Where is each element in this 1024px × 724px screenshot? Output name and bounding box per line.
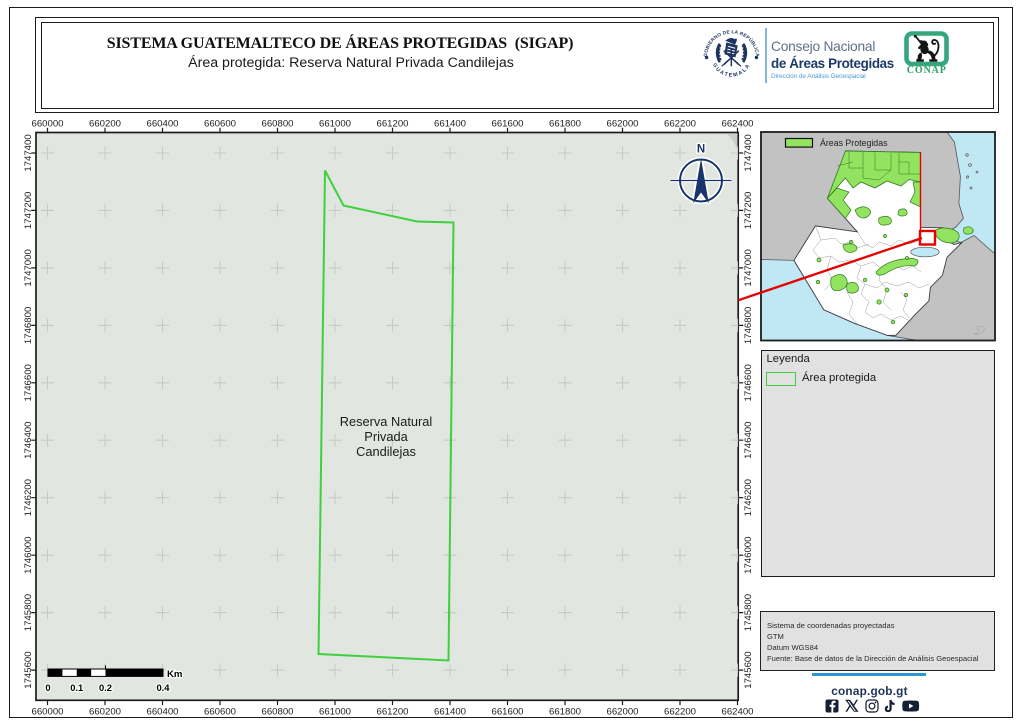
svg-text:1745600: 1745600 (23, 651, 34, 688)
svg-text:660400: 660400 (146, 707, 178, 718)
svg-text:660200: 660200 (89, 119, 121, 130)
svg-text:662200: 662200 (664, 119, 696, 130)
svg-text:N: N (697, 144, 705, 156)
svg-text:1745800: 1745800 (743, 594, 754, 631)
svg-text:Km: Km (167, 669, 182, 680)
svg-text:1747400: 1747400 (743, 134, 754, 171)
svg-text:662400: 662400 (721, 119, 753, 130)
svg-text:Candilejas: Candilejas (356, 444, 416, 459)
svg-text:660400: 660400 (146, 119, 178, 130)
svg-text:0.4: 0.4 (156, 682, 170, 693)
svg-text:1747200: 1747200 (23, 192, 34, 229)
svg-text:662400: 662400 (721, 707, 753, 718)
svg-text:1747000: 1747000 (23, 249, 34, 286)
svg-text:661600: 661600 (491, 119, 523, 130)
svg-text:Áreas Protegidas: Áreas Protegidas (820, 137, 888, 147)
svg-text:1746800: 1746800 (743, 307, 754, 344)
svg-text:661400: 661400 (434, 119, 466, 130)
svg-text:662200: 662200 (664, 707, 696, 718)
svg-text:1746200: 1746200 (23, 479, 34, 516)
svg-text:661000: 661000 (319, 707, 351, 718)
svg-text:1746600: 1746600 (23, 364, 34, 401)
svg-text:1746600: 1746600 (743, 364, 754, 401)
svg-text:661000: 661000 (319, 119, 351, 130)
svg-text:660800: 660800 (261, 707, 293, 718)
svg-text:661200: 661200 (376, 119, 408, 130)
svg-text:1745800: 1745800 (23, 594, 34, 631)
svg-text:660800: 660800 (261, 119, 293, 130)
svg-text:661600: 661600 (491, 707, 523, 718)
svg-text:0.1: 0.1 (70, 682, 83, 693)
svg-text:661200: 661200 (376, 707, 408, 718)
svg-text:Privada: Privada (364, 429, 408, 444)
svg-text:1746400: 1746400 (743, 422, 754, 459)
svg-text:0: 0 (45, 682, 50, 693)
svg-text:660000: 660000 (31, 707, 63, 718)
svg-text:1746000: 1746000 (743, 537, 754, 574)
svg-text:660000: 660000 (31, 119, 63, 130)
svg-text:Reserva Natural: Reserva Natural (340, 414, 432, 429)
svg-text:662000: 662000 (606, 119, 638, 130)
svg-text:661400: 661400 (434, 707, 466, 718)
svg-text:1747400: 1747400 (23, 134, 34, 171)
svg-text:660600: 660600 (204, 119, 236, 130)
svg-text:1746800: 1746800 (23, 307, 34, 344)
svg-text:1746200: 1746200 (743, 479, 754, 516)
svg-text:660200: 660200 (89, 707, 121, 718)
svg-text:662000: 662000 (606, 707, 638, 718)
svg-text:1746400: 1746400 (23, 422, 34, 459)
svg-text:661800: 661800 (549, 119, 581, 130)
svg-text:0.2: 0.2 (99, 682, 112, 693)
svg-text:1746000: 1746000 (23, 537, 34, 574)
svg-text:660600: 660600 (204, 707, 236, 718)
svg-text:1747200: 1747200 (743, 192, 754, 229)
svg-text:1745600: 1745600 (743, 651, 754, 688)
svg-text:661800: 661800 (549, 707, 581, 718)
svg-text:1747000: 1747000 (743, 249, 754, 286)
